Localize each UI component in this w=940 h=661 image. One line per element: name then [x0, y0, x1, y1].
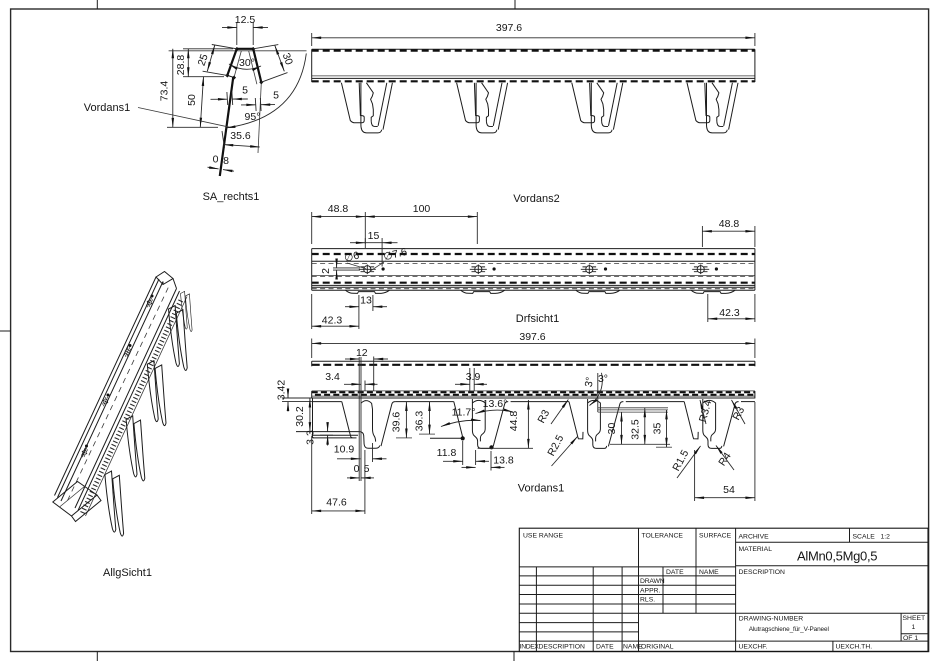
svg-text:42.3: 42.3: [322, 315, 343, 327]
svg-text:42.3: 42.3: [719, 307, 740, 319]
svg-text:44.8: 44.8: [508, 411, 520, 432]
svg-text:35.6: 35.6: [230, 130, 251, 142]
svg-text:SURFACE: SURFACE: [699, 533, 732, 540]
svg-text:100: 100: [413, 203, 431, 215]
svg-text:NAME: NAME: [699, 569, 719, 576]
svg-text:15: 15: [368, 230, 380, 242]
svg-text:10.9: 10.9: [334, 444, 355, 456]
svg-text:SCALE 1:2: SCALE 1:2: [853, 534, 891, 541]
svg-text:SA_rechts1: SA_rechts1: [203, 191, 260, 203]
svg-text:MATERIAL: MATERIAL: [739, 546, 773, 553]
svg-text:5: 5: [273, 90, 279, 102]
svg-text:28.8: 28.8: [175, 55, 187, 76]
svg-text:Vordans1: Vordans1: [84, 102, 130, 114]
svg-text:DATE: DATE: [596, 644, 614, 651]
svg-text:3.3: 3.3: [305, 430, 317, 445]
svg-text:39.6: 39.6: [391, 412, 403, 433]
svg-text:30.2: 30.2: [294, 406, 306, 427]
svg-text:UEXCHF.: UEXCHF.: [739, 644, 768, 651]
svg-text:DESCRIPTION: DESCRIPTION: [739, 569, 786, 576]
svg-text:3.42: 3.42: [276, 380, 288, 401]
svg-text:397.6: 397.6: [519, 331, 545, 343]
svg-text:UEXCH.TH.: UEXCH.TH.: [836, 644, 873, 651]
svg-text:35: 35: [652, 423, 664, 435]
svg-text:OF 1: OF 1: [903, 635, 918, 642]
svg-text:11.8: 11.8: [437, 447, 457, 459]
svg-text:13: 13: [360, 295, 372, 307]
svg-text:3°: 3°: [583, 376, 597, 388]
svg-text:3.4: 3.4: [325, 371, 340, 383]
svg-text:Drfsicht1: Drfsicht1: [516, 313, 559, 325]
svg-text:54: 54: [723, 484, 735, 496]
svg-text:48.8: 48.8: [719, 218, 740, 230]
svg-text:12.5: 12.5: [235, 14, 256, 26]
svg-text:95°: 95°: [245, 111, 261, 123]
svg-text:Vordans2: Vordans2: [513, 193, 559, 205]
svg-text:32.5: 32.5: [630, 419, 642, 440]
svg-text:13.6°: 13.6°: [483, 398, 508, 410]
svg-text:USE RANGE: USE RANGE: [523, 533, 564, 540]
svg-text:DRAWING-NUMBER: DRAWING-NUMBER: [739, 616, 803, 623]
svg-text:3°: 3°: [598, 373, 608, 385]
svg-text:1: 1: [912, 624, 916, 631]
svg-text:INDEX: INDEX: [520, 644, 540, 651]
svg-text:2: 2: [320, 268, 332, 274]
svg-text:SHEET: SHEET: [903, 615, 926, 622]
svg-text:50: 50: [186, 94, 198, 106]
svg-text:47.6: 47.6: [326, 497, 347, 509]
svg-text:0: 0: [213, 154, 219, 166]
svg-text:AlMn0,5Mg0,5: AlMn0,5Mg0,5: [797, 549, 877, 564]
svg-text:DATE: DATE: [666, 569, 684, 576]
svg-text:48.8: 48.8: [328, 203, 349, 215]
svg-text:36.3: 36.3: [414, 411, 426, 432]
svg-text:Alutragschiene_für_V-Paneel: Alutragschiene_für_V-Paneel: [749, 626, 829, 633]
svg-text:0: 0: [354, 463, 360, 475]
svg-text:3.9: 3.9: [466, 371, 481, 383]
svg-text:ORIGINAL: ORIGINAL: [641, 644, 674, 651]
svg-text:397.6: 397.6: [496, 22, 522, 34]
svg-text:5: 5: [242, 85, 248, 97]
svg-text:30°: 30°: [239, 57, 255, 69]
svg-text:11.7°: 11.7°: [452, 407, 476, 419]
svg-text:Vordans1: Vordans1: [518, 483, 564, 495]
svg-text:12: 12: [356, 347, 368, 359]
svg-text:DESCRIPTION: DESCRIPTION: [539, 644, 586, 651]
svg-text:TOLERANCE: TOLERANCE: [642, 533, 684, 540]
svg-text:30: 30: [606, 423, 618, 435]
svg-text:APPR.: APPR.: [640, 587, 661, 594]
svg-text:ARCHIVE: ARCHIVE: [739, 534, 770, 541]
svg-text:13.8: 13.8: [493, 455, 514, 467]
svg-text:DRAWN: DRAWN: [640, 578, 665, 585]
svg-text:8: 8: [223, 155, 229, 167]
svg-text:AllgSicht1: AllgSicht1: [103, 567, 152, 579]
svg-text:73.4: 73.4: [159, 81, 171, 102]
svg-text:RLS.: RLS.: [640, 597, 655, 604]
